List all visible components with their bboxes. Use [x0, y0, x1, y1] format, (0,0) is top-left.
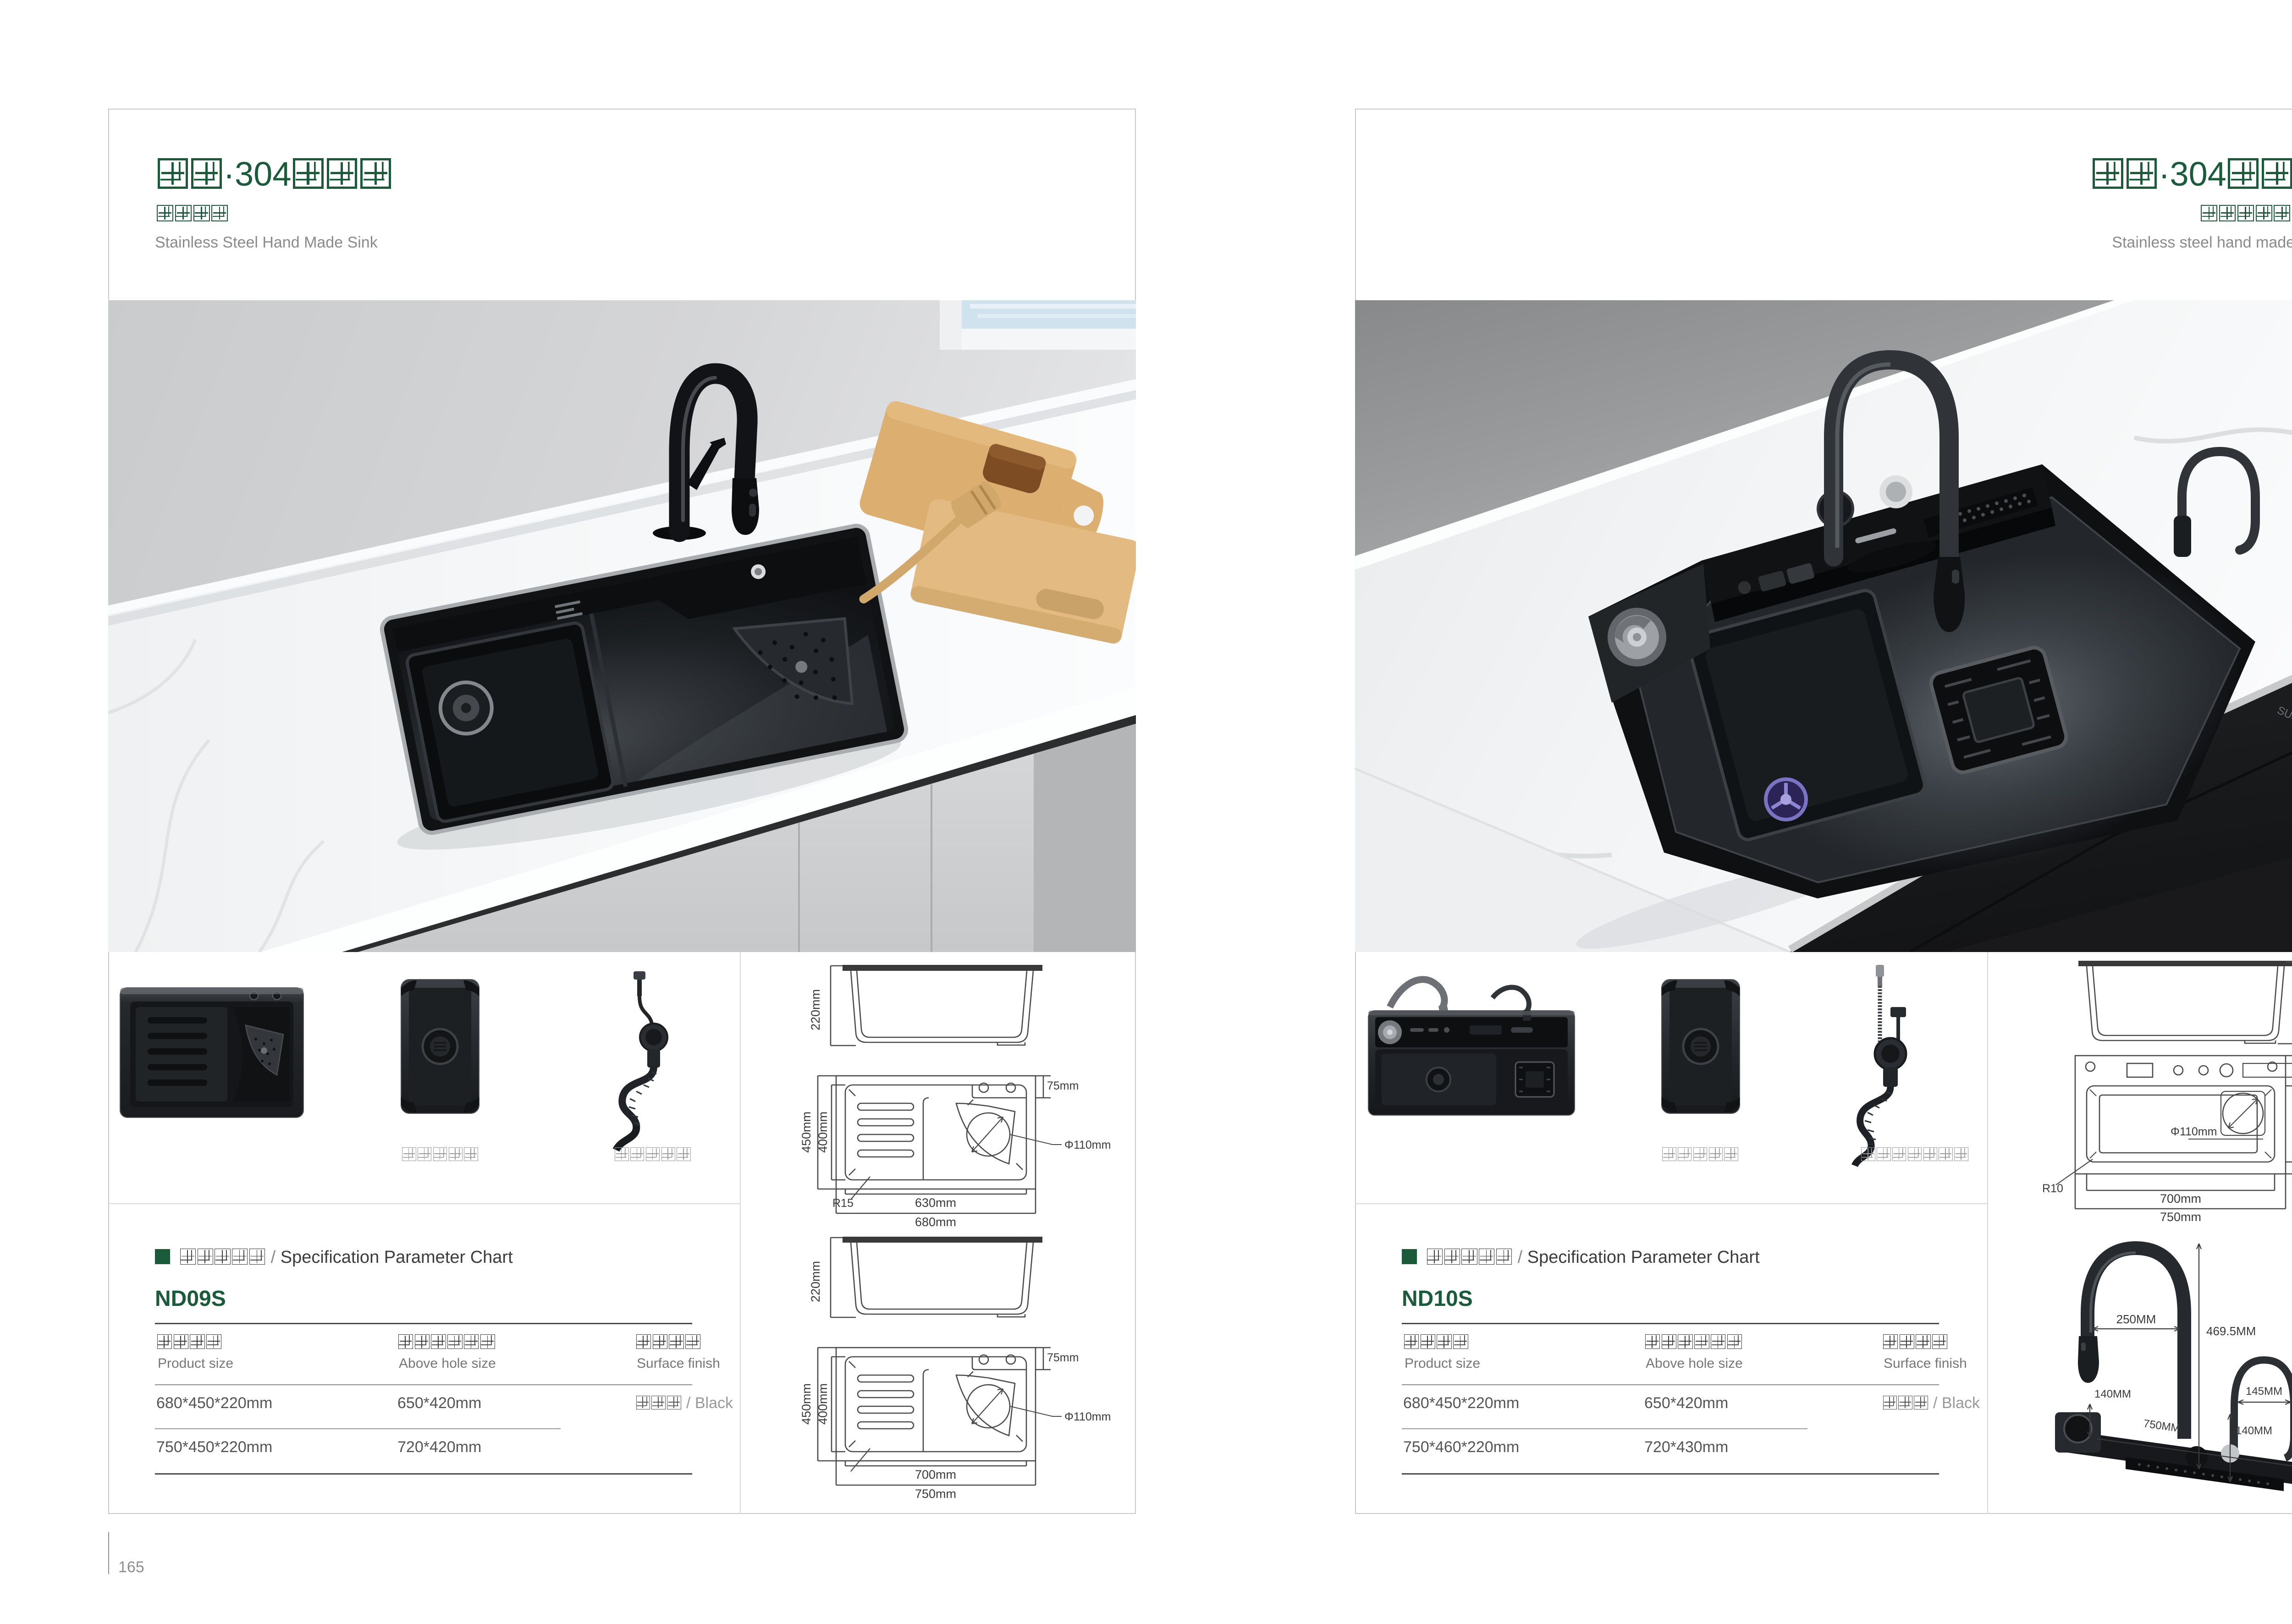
svg-text:Φ110mm: Φ110mm	[2171, 1125, 2217, 1138]
svg-text:400mm: 400mm	[816, 1112, 830, 1153]
svg-text:250MM: 250MM	[2116, 1312, 2156, 1326]
svg-text:Φ110mm: Φ110mm	[1064, 1139, 1111, 1151]
svg-text:140MM: 140MM	[2094, 1388, 2131, 1400]
svg-text:750MM: 750MM	[2143, 1417, 2181, 1435]
svg-text:75mm: 75mm	[1047, 1351, 1079, 1364]
svg-text:700mm: 700mm	[915, 1468, 956, 1481]
svg-text:75mm: 75mm	[1047, 1079, 1079, 1092]
svg-text:680mm: 680mm	[915, 1215, 956, 1229]
svg-text:400mm: 400mm	[816, 1383, 830, 1425]
svg-text:750mm: 750mm	[915, 1487, 956, 1501]
svg-text:220mm: 220mm	[809, 1261, 822, 1302]
svg-text:220mm: 220mm	[809, 989, 822, 1030]
svg-text:700mm: 700mm	[2160, 1192, 2201, 1206]
svg-text:140MM: 140MM	[2236, 1425, 2272, 1437]
svg-text:Φ110mm: Φ110mm	[1064, 1410, 1111, 1423]
svg-text:450mm: 450mm	[799, 1112, 813, 1153]
svg-text:469.5MM: 469.5MM	[2206, 1324, 2256, 1338]
svg-text:145MM: 145MM	[2246, 1385, 2282, 1398]
svg-text:R10: R10	[2042, 1182, 2063, 1195]
svg-text:750mm: 750mm	[2160, 1210, 2201, 1224]
svg-text:450mm: 450mm	[799, 1383, 813, 1425]
svg-text:R15: R15	[832, 1197, 854, 1210]
svg-text:630mm: 630mm	[915, 1196, 956, 1210]
